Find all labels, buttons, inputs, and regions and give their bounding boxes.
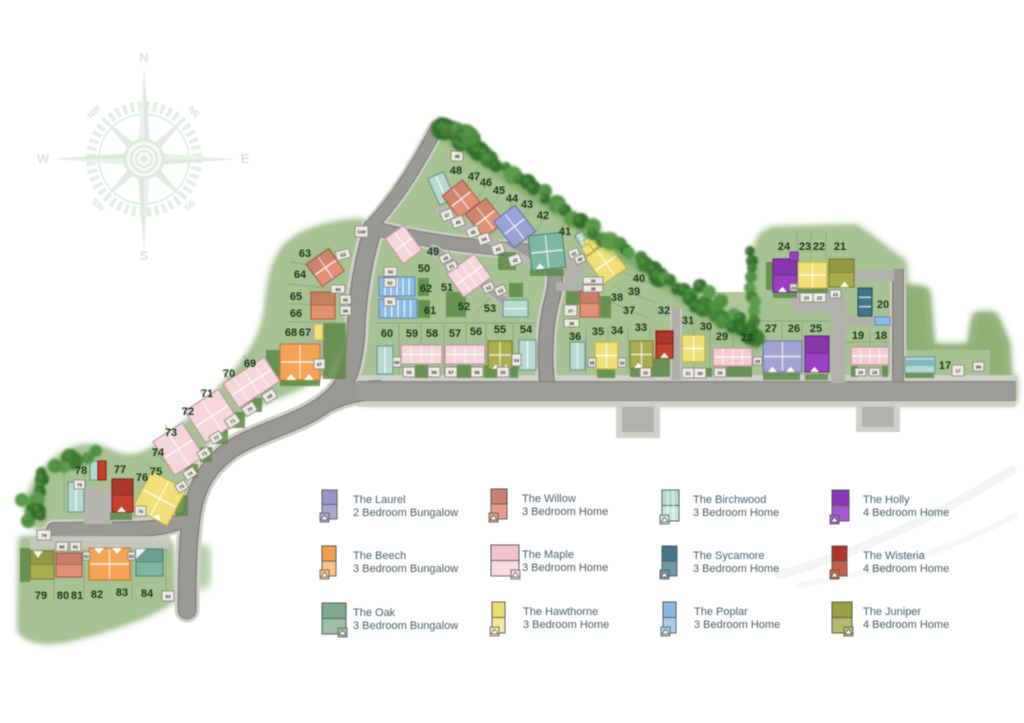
svg-text:28: 28 — [755, 359, 761, 364]
svg-text:42: 42 — [537, 210, 549, 222]
svg-text:50: 50 — [418, 263, 430, 275]
svg-text:The Juniper: The Juniper — [863, 606, 921, 618]
svg-text:3 Bedroom Home: 3 Bedroom Home — [522, 562, 608, 574]
svg-text:58: 58 — [426, 328, 438, 340]
svg-text:47: 47 — [468, 171, 480, 183]
svg-text:4 Bedroom Home: 4 Bedroom Home — [863, 507, 949, 519]
svg-text:55: 55 — [500, 370, 506, 375]
svg-text:24: 24 — [778, 241, 791, 253]
svg-text:83: 83 — [116, 587, 128, 599]
svg-text:22: 22 — [817, 296, 823, 301]
svg-text:52: 52 — [458, 301, 470, 313]
svg-text:30: 30 — [700, 321, 712, 333]
svg-text:73: 73 — [165, 427, 177, 439]
svg-text:24: 24 — [791, 286, 797, 291]
svg-text:25: 25 — [810, 323, 822, 335]
svg-text:46: 46 — [480, 177, 492, 189]
svg-text:S: S — [140, 248, 149, 263]
svg-text:79: 79 — [35, 590, 47, 602]
svg-text:55: 55 — [494, 324, 506, 336]
svg-text:19: 19 — [852, 330, 864, 342]
svg-text:3 Bedroom Bungalow: 3 Bedroom Bungalow — [353, 563, 458, 575]
svg-text:51: 51 — [441, 282, 453, 294]
svg-text:63: 63 — [299, 248, 311, 260]
svg-text:72: 72 — [182, 406, 194, 418]
svg-text:The Wisteria: The Wisteria — [863, 550, 926, 562]
svg-text:60: 60 — [381, 328, 393, 340]
svg-text:64: 64 — [294, 269, 307, 281]
svg-text:40: 40 — [633, 273, 645, 285]
svg-text:18: 18 — [875, 330, 887, 342]
svg-text:38: 38 — [611, 292, 623, 304]
svg-text:67: 67 — [317, 362, 323, 367]
svg-text:The Maple: The Maple — [522, 549, 574, 561]
svg-text:The Poplar: The Poplar — [694, 606, 748, 618]
svg-text:71: 71 — [201, 388, 213, 400]
svg-text:83: 83 — [129, 554, 135, 559]
svg-text:57: 57 — [449, 328, 461, 340]
svg-text:4 Bedroom Home: 4 Bedroom Home — [863, 563, 949, 575]
svg-text:39: 39 — [590, 279, 596, 284]
svg-text:68: 68 — [285, 327, 297, 339]
svg-text:56: 56 — [470, 326, 482, 338]
svg-text:23: 23 — [799, 241, 811, 253]
svg-text:21: 21 — [834, 241, 846, 253]
svg-text:79: 79 — [41, 533, 47, 538]
svg-text:The Birchwood: The Birchwood — [693, 494, 766, 506]
svg-text:45: 45 — [493, 185, 505, 197]
svg-text:80: 80 — [59, 545, 65, 550]
svg-text:76: 76 — [138, 509, 144, 514]
svg-text:The Laurel: The Laurel — [353, 494, 406, 506]
svg-text:41: 41 — [559, 226, 571, 238]
svg-text:36: 36 — [569, 331, 581, 343]
svg-text:37: 37 — [568, 309, 574, 314]
svg-text:23: 23 — [804, 296, 810, 301]
svg-text:70: 70 — [223, 368, 235, 380]
svg-text:62: 62 — [387, 281, 393, 286]
svg-text:35: 35 — [592, 326, 604, 338]
svg-text:The Sycamore: The Sycamore — [693, 550, 765, 562]
svg-text:26: 26 — [788, 323, 800, 335]
svg-text:3 Bedroom Home: 3 Bedroom Home — [522, 506, 608, 518]
svg-text:65: 65 — [290, 291, 302, 303]
svg-text:28: 28 — [741, 332, 753, 344]
svg-text:3 Bedroom Home: 3 Bedroom Home — [523, 619, 609, 631]
svg-text:29: 29 — [716, 331, 728, 343]
svg-text:81: 81 — [71, 590, 83, 602]
svg-text:34: 34 — [619, 361, 625, 366]
svg-text:84: 84 — [141, 588, 154, 600]
svg-text:66: 66 — [290, 308, 302, 320]
svg-text:22: 22 — [813, 241, 825, 253]
svg-text:18: 18 — [872, 370, 878, 375]
svg-text:3 Bedroom Home: 3 Bedroom Home — [694, 619, 780, 631]
svg-text:39: 39 — [628, 286, 640, 298]
svg-text:76: 76 — [136, 472, 148, 484]
svg-text:78: 78 — [75, 465, 87, 477]
svg-text:44: 44 — [506, 193, 519, 205]
svg-text:81: 81 — [73, 545, 79, 550]
svg-text:74: 74 — [152, 447, 165, 459]
svg-text:76: 76 — [77, 483, 83, 488]
svg-text:65: 65 — [343, 298, 349, 303]
svg-text:The Beech: The Beech — [353, 550, 406, 562]
svg-text:21: 21 — [833, 292, 839, 297]
svg-text:2 Bedroom Bungalow: 2 Bedroom Bungalow — [353, 507, 458, 519]
svg-text:54: 54 — [514, 358, 520, 363]
svg-text:32: 32 — [658, 305, 670, 317]
svg-text:The Oak: The Oak — [353, 607, 396, 619]
svg-text:56: 56 — [474, 370, 480, 375]
svg-text:58: 58 — [431, 370, 437, 375]
svg-text:59: 59 — [406, 328, 418, 340]
svg-text:38: 38 — [590, 287, 596, 292]
svg-text:82: 82 — [91, 589, 103, 601]
svg-text:33: 33 — [635, 322, 647, 334]
svg-text:86: 86 — [976, 365, 982, 370]
svg-text:31: 31 — [685, 371, 691, 376]
svg-text:E: E — [241, 151, 250, 166]
svg-text:66: 66 — [343, 309, 349, 314]
svg-text:80: 80 — [57, 590, 69, 602]
svg-text:54: 54 — [520, 324, 533, 336]
svg-text:53: 53 — [484, 303, 496, 315]
svg-text:59: 59 — [406, 370, 412, 375]
svg-text:34: 34 — [611, 325, 624, 337]
svg-text:36: 36 — [569, 321, 575, 326]
svg-text:The Holly: The Holly — [863, 494, 910, 506]
svg-text:62: 62 — [420, 283, 432, 295]
svg-text:4 Bedroom Home: 4 Bedroom Home — [863, 619, 949, 631]
svg-text:35: 35 — [589, 361, 595, 366]
svg-text:82: 82 — [84, 554, 90, 559]
svg-text:The Hawthorne: The Hawthorne — [523, 606, 598, 618]
svg-text:77: 77 — [114, 464, 126, 476]
svg-text:37: 37 — [623, 305, 635, 317]
svg-text:84: 84 — [165, 594, 171, 599]
svg-text:48: 48 — [450, 165, 462, 177]
svg-text:69: 69 — [244, 358, 256, 370]
svg-text:61: 61 — [387, 300, 393, 305]
svg-text:GW: GW — [358, 230, 367, 235]
svg-text:60: 60 — [394, 360, 400, 365]
svg-text:31: 31 — [682, 315, 694, 327]
svg-text:The Willow: The Willow — [522, 493, 576, 505]
svg-text:30: 30 — [697, 371, 703, 376]
svg-text:61: 61 — [424, 305, 436, 317]
svg-text:67: 67 — [299, 327, 311, 339]
svg-text:19: 19 — [858, 370, 864, 375]
svg-text:27: 27 — [765, 323, 777, 335]
svg-text:75: 75 — [150, 466, 162, 478]
svg-text:17: 17 — [955, 369, 961, 374]
svg-text:43: 43 — [521, 199, 533, 211]
svg-text:64: 64 — [335, 287, 341, 292]
svg-text:29: 29 — [717, 371, 723, 376]
svg-text:W: W — [37, 151, 50, 166]
svg-text:48: 48 — [454, 154, 460, 159]
svg-text:3 Bedroom Home: 3 Bedroom Home — [693, 563, 779, 575]
svg-text:17: 17 — [939, 360, 951, 372]
svg-text:3 Bedroom Home: 3 Bedroom Home — [693, 507, 779, 519]
svg-text:57: 57 — [448, 370, 454, 375]
svg-text:3 Bedroom Bungalow: 3 Bedroom Bungalow — [353, 620, 458, 632]
svg-text:N: N — [139, 50, 148, 65]
svg-text:50: 50 — [388, 270, 394, 275]
svg-text:20: 20 — [877, 299, 889, 311]
svg-text:33: 33 — [643, 371, 649, 376]
svg-text:49: 49 — [427, 246, 439, 258]
